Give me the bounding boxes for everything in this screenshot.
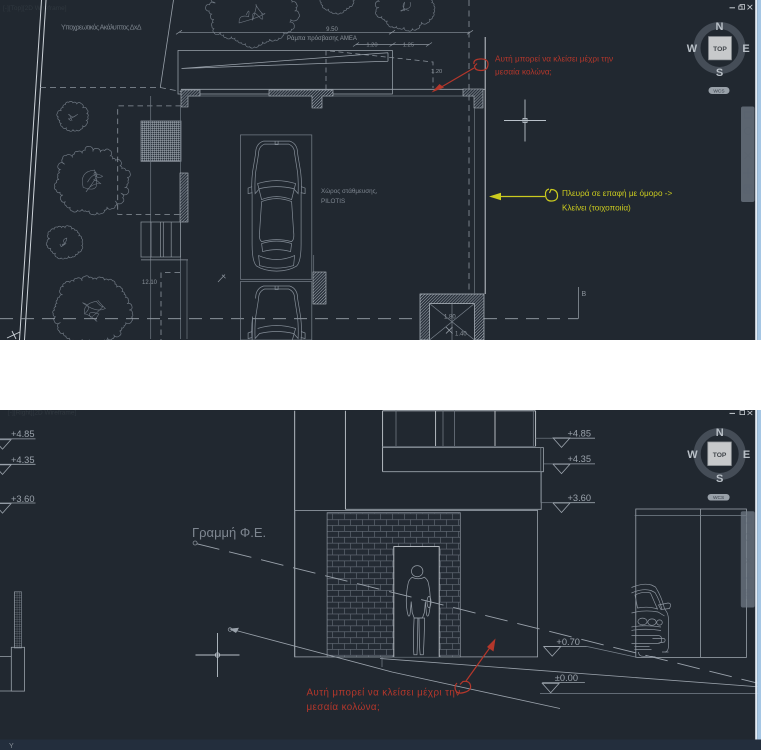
svg-text:Υποχρεωτικός Ακάλυπτος ΔxΔ: Υποχρεωτικός Ακάλυπτος ΔxΔ bbox=[61, 24, 142, 32]
svg-text:+3.60: +3.60 bbox=[11, 494, 35, 504]
svg-text:±0.00: ±0.00 bbox=[555, 673, 578, 683]
svg-text:TOP: TOP bbox=[713, 46, 727, 53]
svg-text:WCS: WCS bbox=[713, 495, 724, 501]
svg-text:1.20: 1.20 bbox=[431, 69, 442, 75]
svg-text:12.10: 12.10 bbox=[142, 280, 158, 286]
svg-text:N: N bbox=[716, 21, 724, 33]
svg-text:S: S bbox=[716, 67, 723, 79]
svg-text:+3.60: +3.60 bbox=[568, 493, 592, 503]
svg-text:+0.70: +0.70 bbox=[556, 637, 580, 647]
svg-text:E: E bbox=[742, 43, 749, 55]
svg-text:Πλευρά σε επαφή με όμορο ->: Πλευρά σε επαφή με όμορο -> bbox=[562, 189, 673, 198]
svg-text:W: W bbox=[687, 449, 698, 461]
svg-text:Κλείνει (τοιχοποιία): Κλείνει (τοιχοποιία) bbox=[562, 204, 631, 213]
svg-text:N: N bbox=[716, 427, 724, 439]
svg-text:Γραμμή Φ.Ε.: Γραμμή Φ.Ε. bbox=[192, 525, 266, 540]
svg-text:1.25: 1.25 bbox=[403, 43, 414, 49]
svg-text:μεσαία κολώνα;: μεσαία κολώνα; bbox=[307, 702, 381, 713]
svg-text:+4.35: +4.35 bbox=[568, 454, 592, 464]
svg-text:Y: Y bbox=[9, 743, 14, 750]
svg-text:TOP: TOP bbox=[713, 452, 727, 459]
svg-text:B: B bbox=[582, 291, 587, 298]
svg-text:+4.35: +4.35 bbox=[11, 455, 35, 465]
svg-text:+4.85: +4.85 bbox=[568, 429, 592, 439]
svg-text:[-][Right][2D Wireframe]: [-][Right][2D Wireframe] bbox=[8, 410, 76, 417]
svg-text:Αυτή μπορεί να κλείσει μέχρι τ: Αυτή μπορεί να κλείσει μέχρι την bbox=[307, 688, 461, 699]
svg-text:E: E bbox=[743, 449, 750, 461]
svg-text:WCS: WCS bbox=[713, 89, 724, 95]
svg-text:S: S bbox=[716, 473, 723, 485]
svg-text:1.40: 1.40 bbox=[455, 332, 467, 338]
svg-text:Χώρος στάθμευσης,: Χώρος στάθμευσης, bbox=[321, 187, 378, 195]
svg-text:+4.85: +4.85 bbox=[11, 429, 35, 439]
svg-text:W: W bbox=[687, 43, 698, 55]
svg-text:PILOTIS: PILOTIS bbox=[321, 198, 345, 205]
svg-text:[-][Top][2D Wireframe]: [-][Top][2D Wireframe] bbox=[3, 5, 67, 12]
svg-text:1.80: 1.80 bbox=[444, 315, 456, 321]
svg-text:1.20: 1.20 bbox=[366, 43, 377, 49]
svg-text:9.50: 9.50 bbox=[326, 27, 338, 33]
svg-text:μεσαία κολώνα;: μεσαία κολώνα; bbox=[495, 68, 552, 77]
svg-text:Ράμπα πρόσβασης ΑΜΕΑ: Ράμπα πρόσβασης ΑΜΕΑ bbox=[287, 35, 357, 42]
svg-text:Αυτή μπορεί να κλείσει μέχρι τ: Αυτή μπορεί να κλείσει μέχρι την bbox=[495, 55, 613, 64]
